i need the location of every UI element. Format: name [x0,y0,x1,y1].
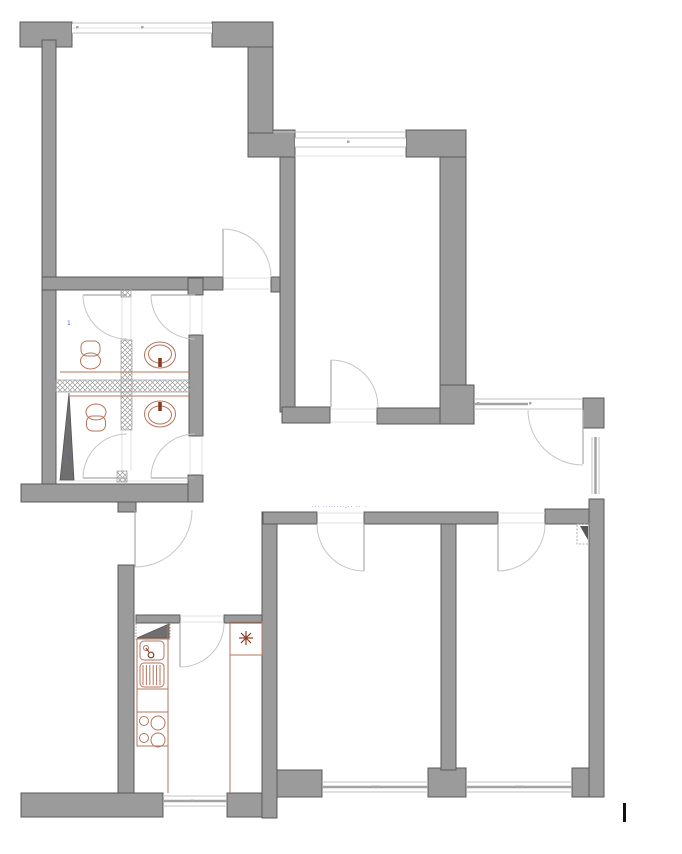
wall-hall-top-mid [364,512,498,524]
wc-lower-mark: 1 [67,455,71,462]
floor-plan-canvas: ··· ········,·· ·· · 1 1 [0,0,682,854]
kitchen-counter-segment [137,689,168,712]
installation-walls [56,287,193,482]
door-wc-upper-right [151,295,195,339]
shaft-triangle-kitchen [137,624,169,638]
door-wc-lower-right [151,434,195,478]
cursor-bar [623,803,626,822]
door-corridor [135,510,192,567]
door-room2 [331,360,378,407]
kitchen-sink-icon [137,639,168,689]
window-hall-top [474,399,583,409]
wall-bath-pier-top [188,278,203,295]
wall-room2-bottom-left [282,407,330,423]
wall-room2-left [280,157,295,412]
toilet-upper-icon [81,341,101,369]
heater-star-icon [239,631,253,645]
wall-room2-bottom [377,408,440,424]
door-wc-upper-left [83,295,127,339]
door-kitchen [180,623,224,667]
heater-closet [230,622,262,793]
wall-left-exterior [42,40,56,484]
wall-bottomrooms-left [262,512,277,818]
wall-room2-topright-block [406,130,466,157]
hatch-marker-bottom [117,471,127,482]
wall-room1-topright-block [212,22,273,47]
door-bottom-middle-room [317,524,364,571]
wall-bath-bottom [21,484,200,502]
toilet-lower-icon [86,404,106,431]
kitchen-fixtures [136,622,262,793]
wall-right-exterior [589,499,604,797]
window-bottom-right [466,782,572,792]
layer-annotation-text: ··· ········,·· ·· · [312,504,367,510]
door-room1 [223,229,271,277]
wall-step-block [118,502,136,512]
kitchen-stove-icon [137,712,168,747]
wall-room2-bottomright-block [440,385,474,424]
shaft-triangle-bath [60,393,74,480]
wall-bath-pier-bottom [188,475,203,502]
window-kitchen-bottom [163,796,227,806]
wall-bottomrooms-divider [441,524,456,770]
window-right-side [592,437,599,494]
wall-room1-right [248,40,273,133]
window-bottom-middle [322,782,428,792]
washbasin-upper-icon [145,342,176,368]
floor-plan-drawing: ··· ········,·· ·· · 1 1 [0,0,682,854]
wall-corridor-left [118,565,134,793]
door-entrance [528,410,583,465]
wall-right-top-block [583,398,604,428]
wall-room2-right [440,157,466,398]
wall-hall-top-left [263,512,317,524]
wall-facade-step-block [248,130,295,157]
washbasin-lower-icon [145,401,176,427]
wall-bottom-flange1 [277,770,322,797]
hatch-strip-vertical [121,340,132,430]
door-bottom-right-room [498,524,545,571]
window-room1-top [72,23,212,33]
wc-upper-mark: 1 [67,320,71,327]
vent-marker [577,524,590,544]
wall-hall-pier-right [545,509,589,524]
wall-bottom-left [21,793,163,817]
wall-bottom-tee-block [428,768,466,797]
doors [83,229,583,667]
